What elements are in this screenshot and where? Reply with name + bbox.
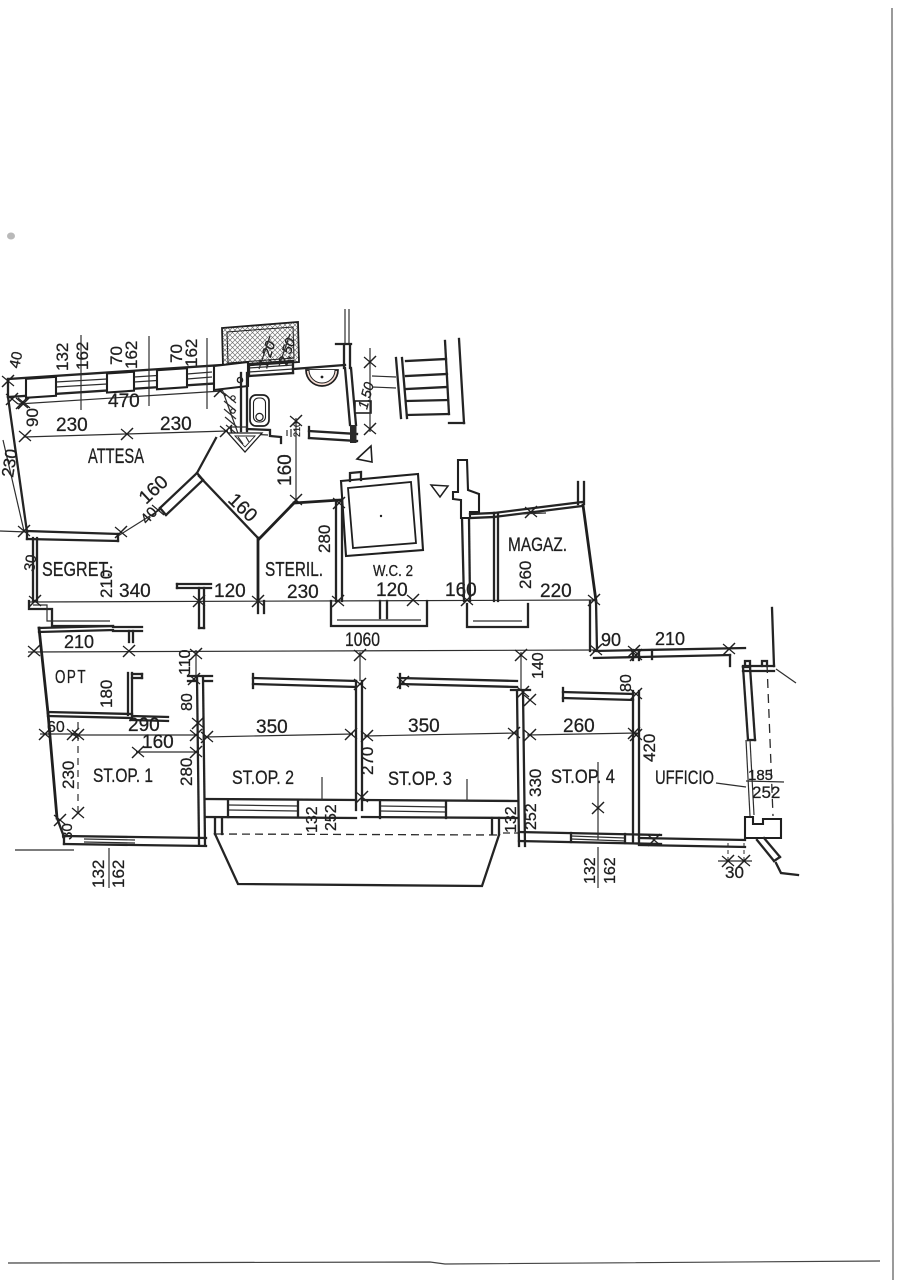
- svg-text:330: 330: [526, 769, 545, 797]
- svg-text:252: 252: [323, 804, 340, 831]
- svg-text:230: 230: [160, 414, 192, 435]
- svg-text:260: 260: [516, 561, 535, 589]
- svg-text:280: 280: [315, 525, 334, 553]
- svg-text:OPT: OPT: [55, 667, 87, 687]
- svg-text:162: 162: [109, 860, 128, 888]
- svg-text:160: 160: [142, 732, 174, 753]
- svg-text:120: 120: [376, 580, 408, 601]
- svg-text:210: 210: [292, 422, 302, 437]
- svg-text:30: 30: [725, 863, 744, 882]
- svg-text:162: 162: [182, 339, 201, 367]
- svg-text:ST.OP. 3: ST.OP. 3: [388, 769, 452, 790]
- svg-text:470: 470: [108, 391, 140, 412]
- svg-text:160: 160: [275, 454, 296, 486]
- svg-text:80: 80: [179, 693, 196, 711]
- svg-text:1060: 1060: [345, 630, 380, 651]
- svg-text:230: 230: [59, 761, 78, 789]
- svg-text:110: 110: [177, 649, 194, 675]
- svg-text:W.C. 2: W.C. 2: [373, 563, 413, 580]
- svg-text:120: 120: [214, 581, 246, 602]
- svg-text:ST.OP. 4: ST.OP. 4: [551, 767, 615, 788]
- svg-text:230: 230: [56, 415, 88, 436]
- svg-text:40: 40: [6, 350, 26, 370]
- svg-text:162: 162: [122, 341, 141, 369]
- svg-text:350: 350: [408, 716, 440, 737]
- svg-text:80: 80: [618, 674, 635, 692]
- svg-text:140: 140: [530, 652, 547, 679]
- svg-text:90: 90: [23, 408, 42, 427]
- svg-text:132: 132: [582, 857, 599, 884]
- svg-text:ST.OP. 1: ST.OP. 1: [93, 766, 153, 787]
- svg-text:210.: 210.: [97, 565, 116, 598]
- svg-text:270: 270: [358, 747, 377, 775]
- svg-text:132: 132: [304, 806, 321, 833]
- svg-text:162: 162: [602, 857, 619, 884]
- svg-text:220: 220: [540, 581, 572, 602]
- svg-text:STERIL.: STERIL.: [265, 559, 323, 581]
- svg-text:132: 132: [53, 343, 72, 371]
- svg-text:210: 210: [64, 632, 94, 652]
- svg-text:252: 252: [752, 783, 780, 802]
- svg-text:ST.OP. 2: ST.OP. 2: [232, 768, 294, 789]
- svg-text:280: 280: [177, 758, 196, 786]
- svg-text:180: 180: [97, 680, 116, 708]
- svg-text:210: 210: [655, 629, 685, 649]
- svg-text:160: 160: [445, 580, 477, 601]
- svg-text:420: 420: [640, 734, 659, 762]
- svg-text:UFFICIO: UFFICIO: [655, 768, 714, 789]
- svg-text:MAGAZ.: MAGAZ.: [508, 535, 567, 556]
- svg-text:ATTESA: ATTESA: [88, 445, 144, 468]
- svg-text:90: 90: [601, 630, 621, 650]
- svg-text:162: 162: [73, 342, 92, 370]
- svg-text:230: 230: [287, 582, 319, 603]
- svg-text:340: 340: [119, 581, 151, 602]
- svg-text:132: 132: [89, 860, 108, 888]
